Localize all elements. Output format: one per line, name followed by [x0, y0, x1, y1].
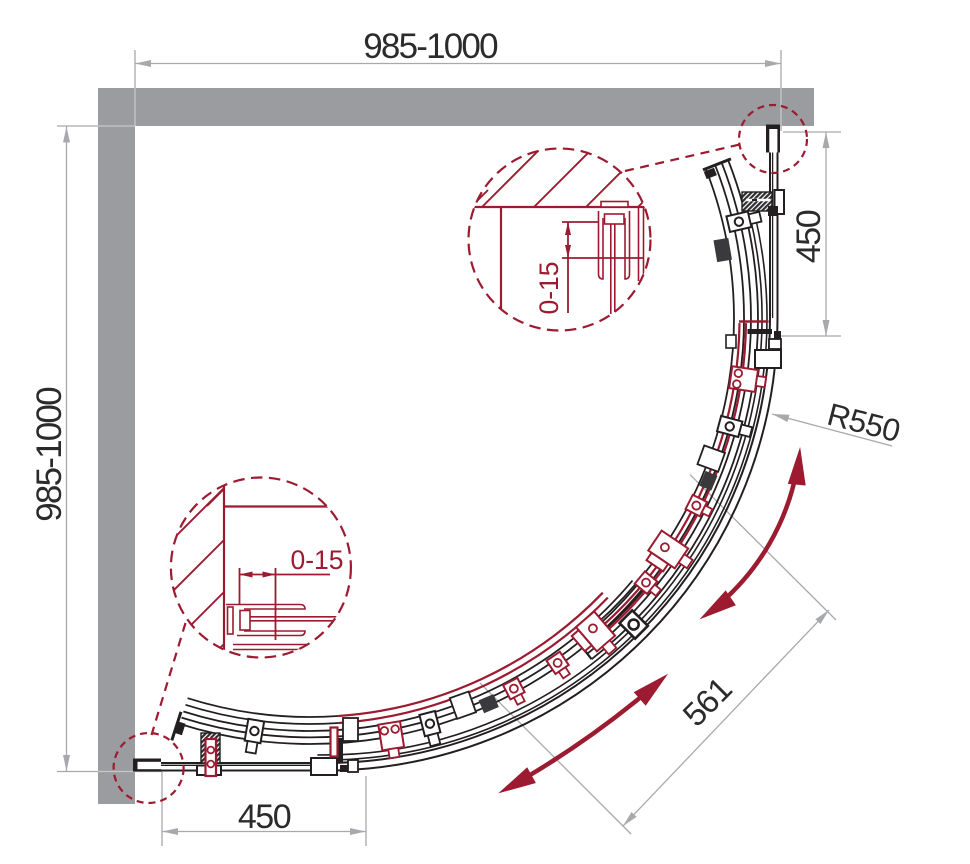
- svg-text:0-15: 0-15: [534, 261, 564, 314]
- svg-text:985-1000: 985-1000: [363, 27, 498, 66]
- svg-text:450: 450: [238, 798, 291, 836]
- svg-text:985-1000: 985-1000: [30, 387, 69, 522]
- svg-text:450: 450: [790, 210, 828, 263]
- svg-text:0-15: 0-15: [290, 545, 343, 575]
